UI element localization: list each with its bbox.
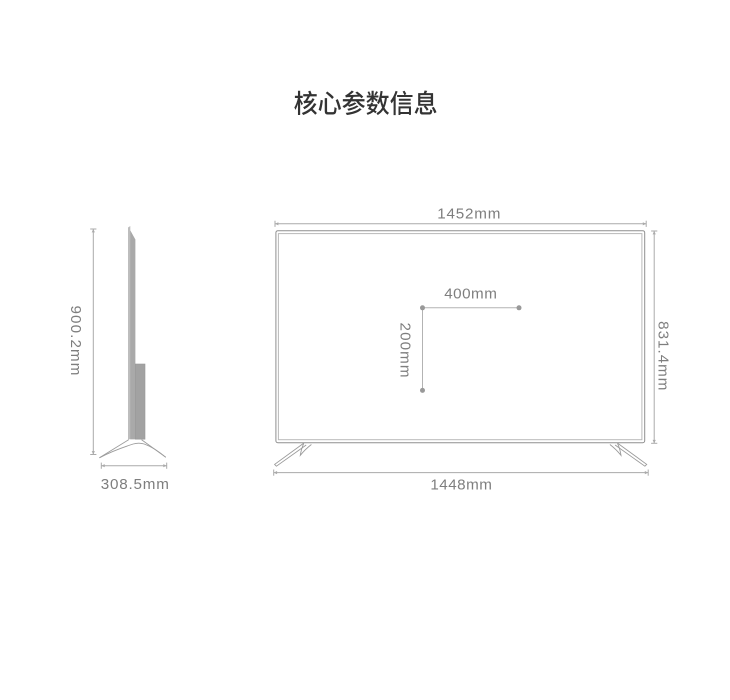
svg-text:1452mm: 1452mm [437, 205, 501, 222]
svg-text:308.5mm: 308.5mm [101, 476, 170, 493]
svg-text:400mm: 400mm [444, 285, 497, 302]
svg-text:831.4mm: 831.4mm [655, 321, 672, 391]
svg-text:900.2mm: 900.2mm [67, 305, 84, 376]
svg-text:200mm: 200mm [396, 323, 413, 379]
svg-text:1448mm: 1448mm [430, 477, 492, 494]
